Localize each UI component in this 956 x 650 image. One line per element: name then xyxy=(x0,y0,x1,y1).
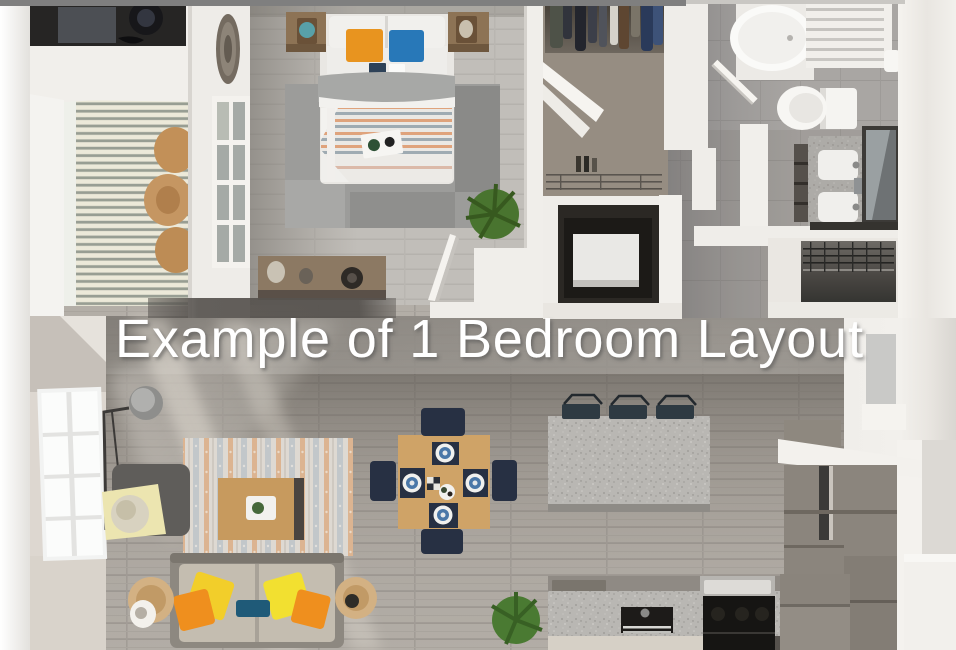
svg-text:Example of 1 Bedroom Layout: Example of 1 Bedroom Layout xyxy=(115,309,863,369)
